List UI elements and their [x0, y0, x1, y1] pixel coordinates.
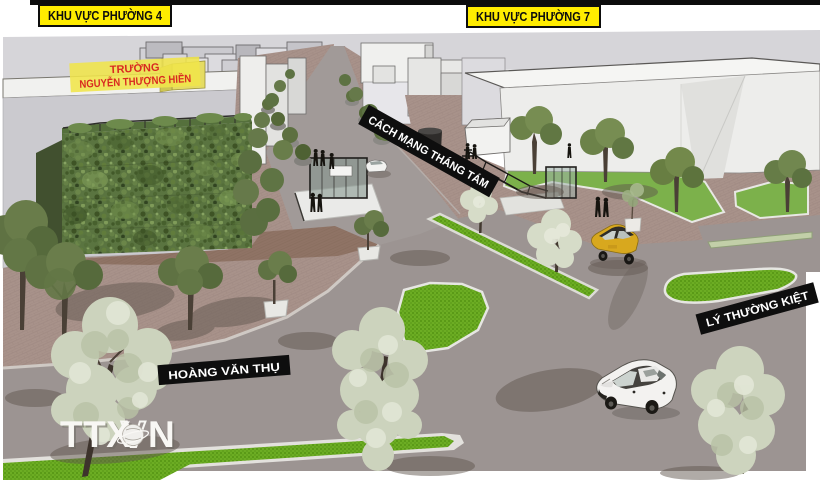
svg-text:TRƯỜNG: TRƯỜNG	[110, 61, 160, 77]
svg-text:N: N	[148, 414, 175, 455]
svg-text:KHU VỰC PHƯỜNG 4: KHU VỰC PHƯỜNG 4	[48, 8, 162, 23]
svg-text:KHU VỰC PHƯỜNG 7: KHU VỰC PHƯỜNG 7	[476, 9, 590, 24]
